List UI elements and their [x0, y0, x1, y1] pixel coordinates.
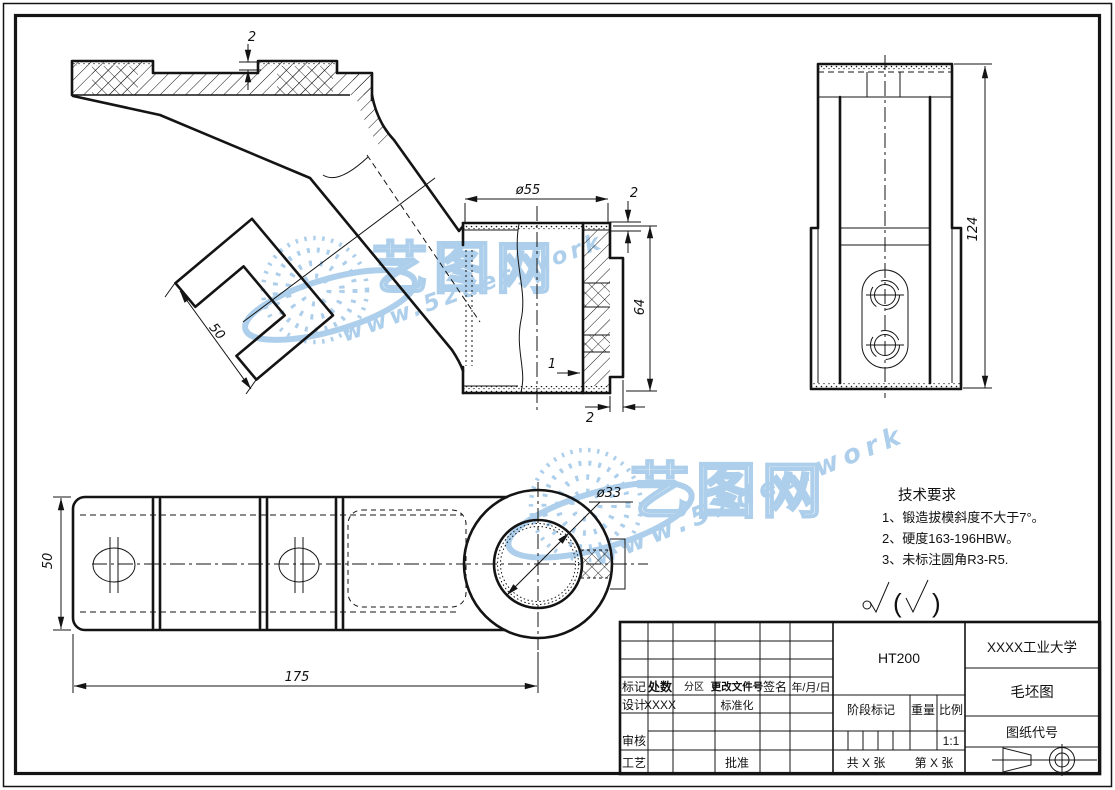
tech-requirements: 技术要求 1、锻造拔模斜度不大于7°。 2、硬度163-196HBW。 3、未标… — [882, 487, 1045, 567]
dim-label-section-step: 1 — [548, 357, 556, 372]
tb-header-date: 年/月/日 — [791, 680, 830, 694]
dim-label-section-dia: ø55 — [515, 183, 541, 198]
watermark-2: 艺图网 www.52des.work — [501, 420, 910, 574]
tb-weight-label: 重量 — [911, 703, 935, 717]
tb-standardize-label: 标准化 — [721, 698, 754, 712]
checkmark-icon — [906, 580, 928, 612]
paren-close: ) — [932, 588, 941, 618]
tb-material: HT200 — [878, 650, 920, 666]
surface-finish-icon — [863, 582, 889, 612]
tb-sheet-total: 共 X 张 — [847, 756, 886, 770]
tb-scale-value: 1:1 — [943, 734, 960, 748]
dim-label-hole-dia: ø33 — [596, 486, 622, 501]
dim-label-fork-width: 50 — [206, 321, 228, 343]
drawing-canvas: 艺图网 www.52des.work 艺图网 www.52des.work — [0, 0, 1115, 790]
tech-req-line-3: 3、未标注圆角R3-R5. — [882, 552, 1008, 567]
tb-stage-label: 阶段标记 — [847, 702, 895, 717]
tb-header-zone: 分区 — [684, 681, 704, 693]
fork-feature — [175, 219, 333, 380]
tech-req-line-2: 2、硬度163-196HBW。 — [882, 531, 1019, 546]
dim-label-front-height: 124 — [966, 217, 981, 242]
paren-open: ( — [893, 588, 902, 618]
tb-header-sign: 签名 — [763, 679, 787, 694]
tb-company: XXXX工业大学 — [987, 640, 1077, 655]
border-frame — [4, 4, 1112, 787]
watermark-1: 艺图网 www.52des.work — [238, 228, 607, 354]
dim-label-bar-length: 175 — [285, 670, 310, 685]
projection-symbol-icon — [992, 744, 1097, 776]
tb-header-change-file: 更改文件号 — [711, 680, 764, 693]
drawing-sheet: 艺图网 www.52des.work 艺图网 www.52des.work — [0, 0, 1115, 790]
tb-scale-label: 比例 — [939, 703, 963, 717]
tech-req-line-1: 1、锻造拔模斜度不大于7°。 — [882, 510, 1045, 525]
tech-req-title: 技术要求 — [898, 487, 956, 504]
dim-label-section-top: 2 — [630, 186, 638, 201]
tb-header-mark: 标记 — [622, 680, 646, 694]
dim-label-bar-width: 50 — [41, 553, 56, 570]
tb-design-label: 设计 — [622, 698, 646, 712]
dim-label-section-bottom: 2 — [586, 411, 594, 426]
tb-header-count: 处数 — [647, 679, 673, 694]
dim-label-section-height: 64 — [633, 299, 648, 316]
section-view: ø55 64 2 1 2 — [463, 183, 657, 426]
title-block: 标记 处数 分区 更改文件号 签名 年/月/日 设计 XXXX 标准化 审核 工… — [620, 622, 1100, 776]
front-view: 124 — [811, 55, 992, 398]
tb-approve-label: 批准 — [725, 755, 749, 770]
surface-finish-note: ( ) — [863, 580, 941, 618]
tb-drawing-title: 毛坯图 — [1010, 684, 1054, 701]
tb-drawing-code: 图纸代号 — [1006, 725, 1058, 740]
dim-label-plate-boss: 2 — [248, 30, 256, 45]
tb-sheet-number: 第 X 张 — [915, 756, 954, 770]
tb-review-label: 审核 — [622, 733, 646, 748]
tb-design-value: XXXX — [644, 698, 676, 712]
tb-process-label: 工艺 — [622, 756, 646, 770]
